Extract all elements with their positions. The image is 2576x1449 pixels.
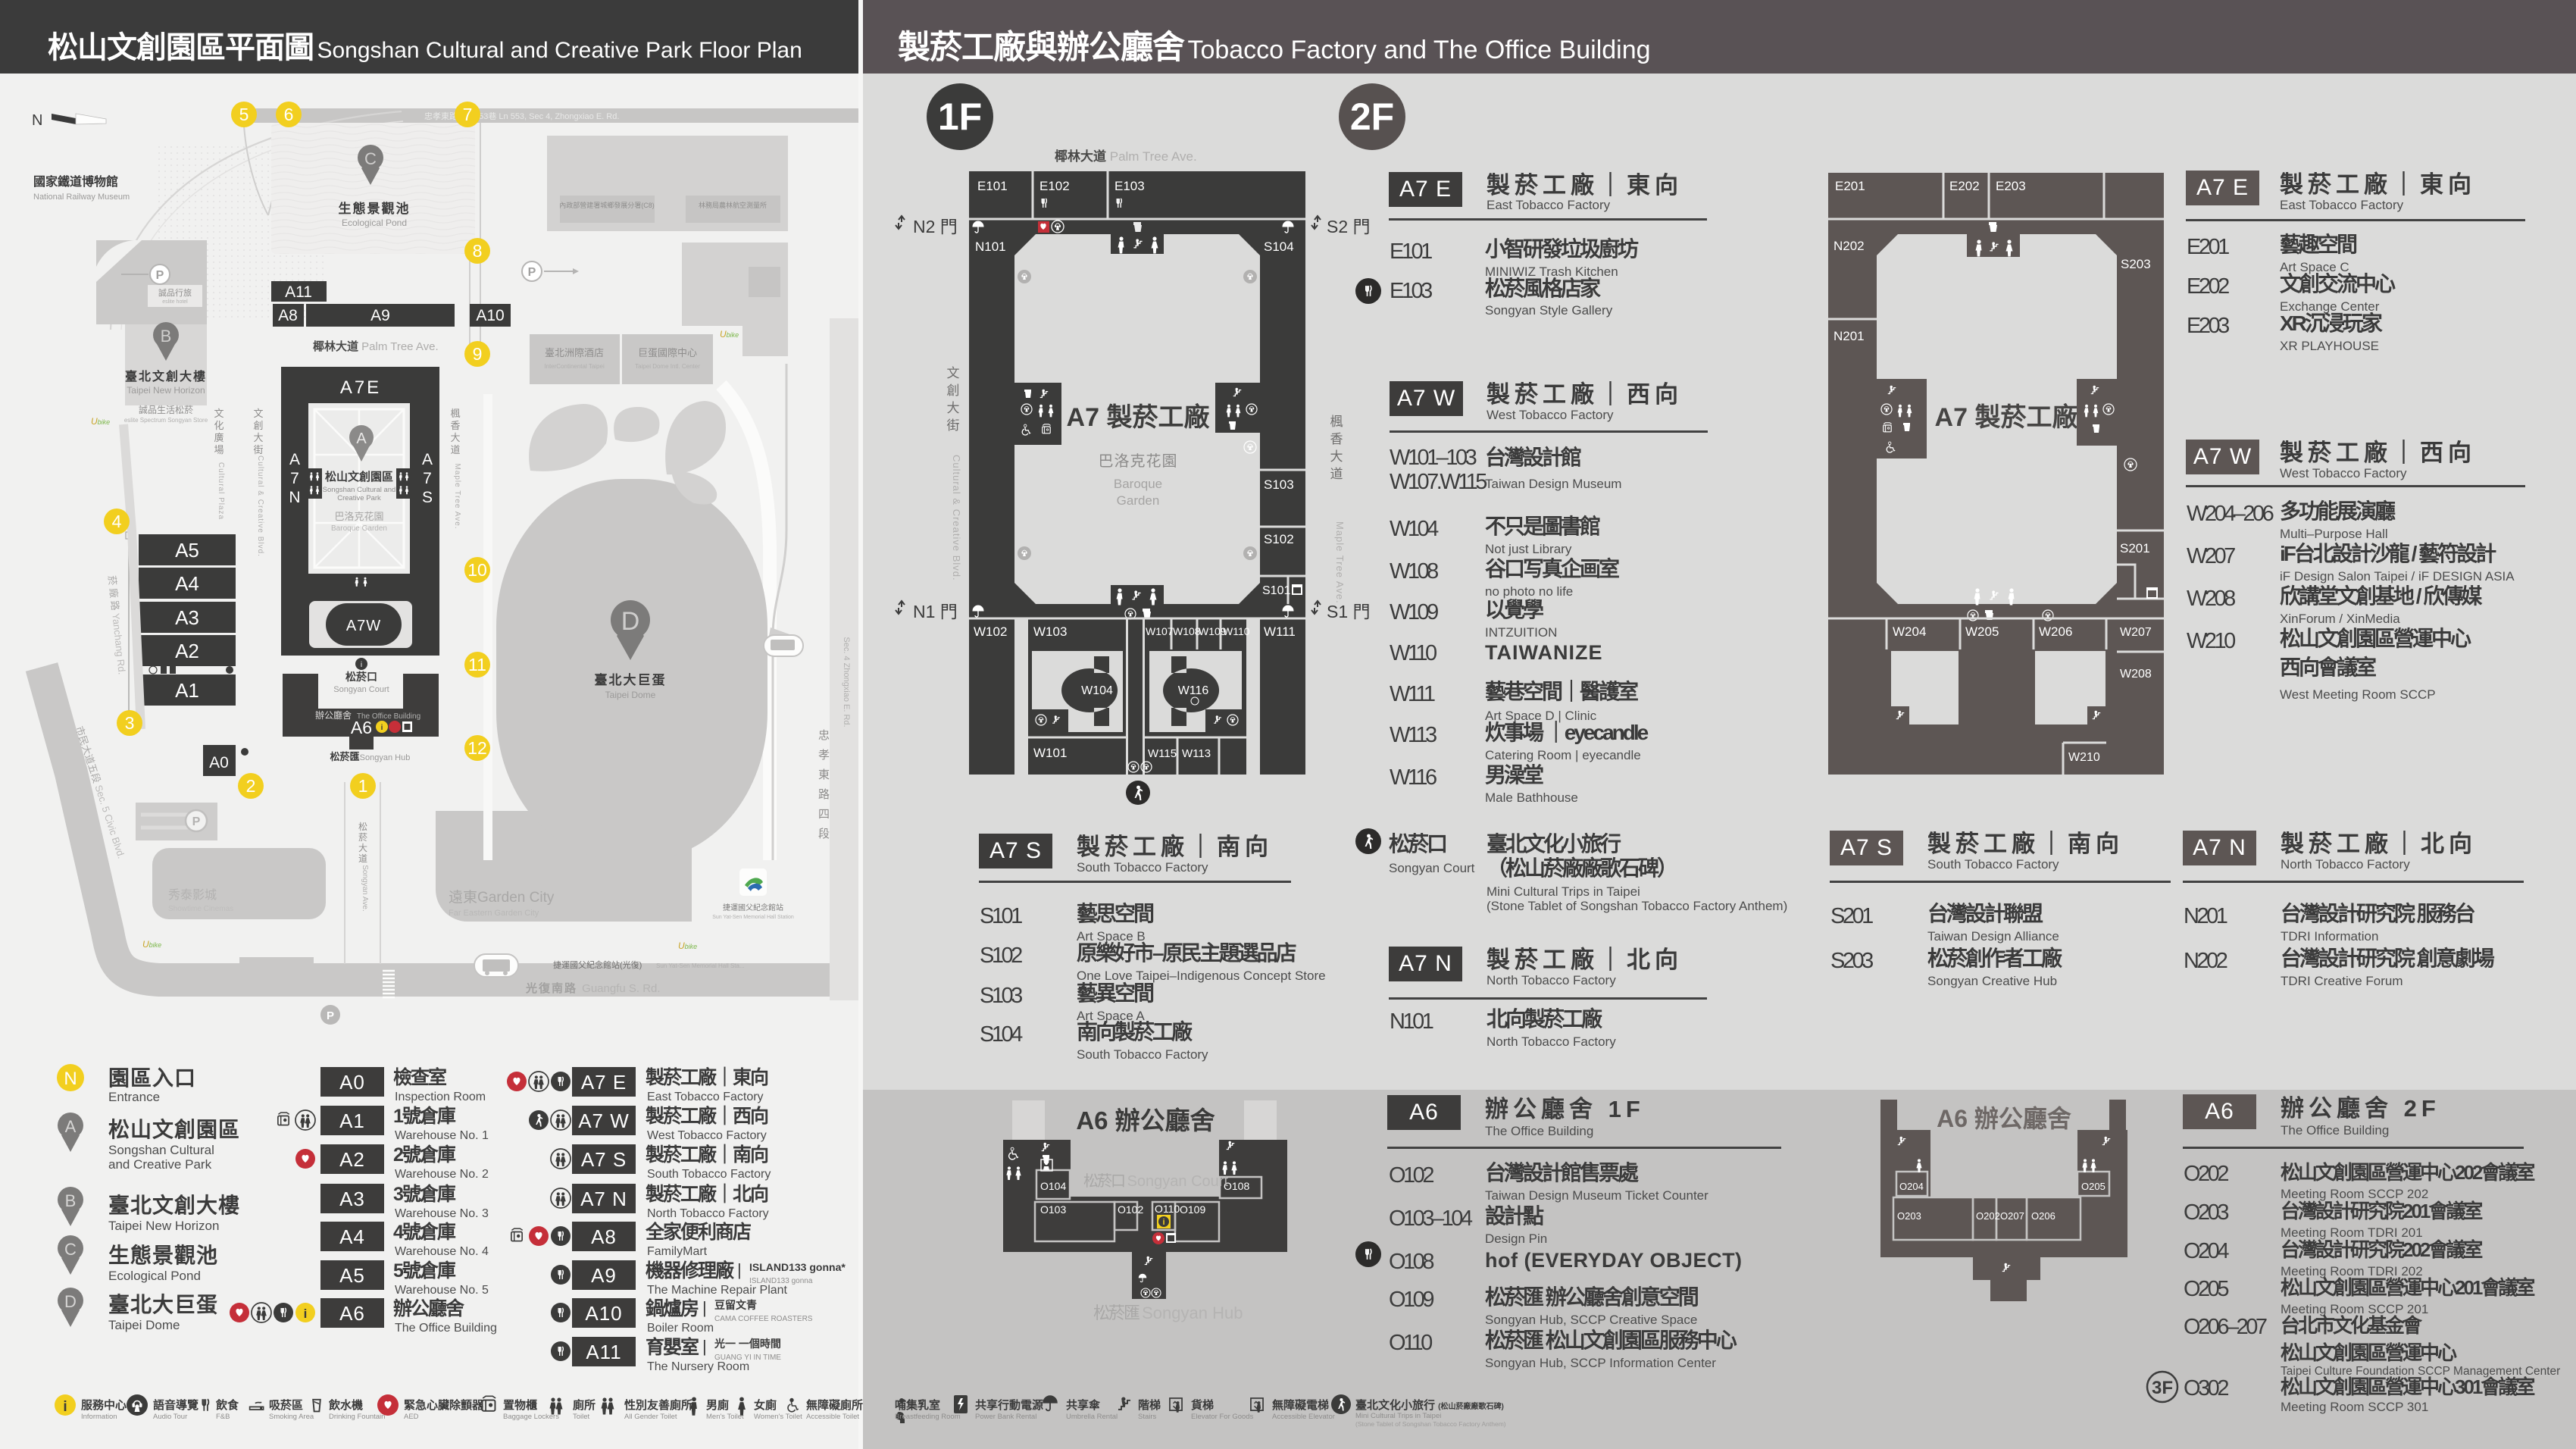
svg-text:S101: S101 [1262, 584, 1290, 597]
svg-text:W107: W107 [1146, 625, 1174, 637]
svg-text:E202: E202 [1949, 179, 1980, 193]
svg-text:10: 10 [467, 560, 487, 580]
svg-text:誠品生活松菸: 誠品生活松菸 [139, 405, 193, 415]
svg-text:鍋爐房: 鍋爐房 [646, 1297, 699, 1319]
svg-text:A3: A3 [339, 1188, 365, 1210]
svg-text:W111: W111 [1264, 624, 1296, 639]
svg-text:8: 8 [473, 241, 483, 261]
svg-text:Songshan Cultural and: Songshan Cultural and [323, 486, 396, 494]
svg-text:忠孝東路四段553巷 Ln 553, Sec 4, Zhon: 忠孝東路四段553巷 Ln 553, Sec 4, Zhongxiao E. R… [424, 111, 619, 121]
svg-text:A5: A5 [175, 539, 199, 562]
svg-text:生態景觀池: 生態景觀池 [108, 1243, 218, 1267]
svg-text:N: N [32, 112, 42, 129]
svg-text:2號倉庫: 2號倉庫 [393, 1144, 456, 1166]
svg-text:|: | [702, 1298, 707, 1317]
svg-text:W113: W113 [1182, 747, 1211, 760]
svg-text:語音導覽: 語音導覽 [153, 1398, 199, 1412]
svg-text:巴洛克花園: 巴洛克花園 [334, 511, 383, 522]
svg-text:全家便利商店: 全家便利商店 [645, 1221, 752, 1243]
svg-text:12: 12 [467, 738, 487, 758]
svg-text:W210: W210 [2068, 751, 2100, 764]
svg-text:S201: S201 [2120, 541, 2150, 556]
svg-text:製菸工廠｜北向: 製菸工廠｜北向 [645, 1183, 768, 1205]
svg-text:椰林大道 Palm Tree Ave.: 椰林大道 Palm Tree Ave. [313, 340, 439, 353]
svg-text:A2: A2 [339, 1148, 365, 1171]
svg-text:5號倉庫: 5號倉庫 [393, 1260, 456, 1282]
svg-text:A6: A6 [351, 718, 372, 737]
svg-text:臺北文創大樓: 臺北文創大樓 [125, 369, 207, 383]
svg-text:A10: A10 [585, 1302, 622, 1325]
svg-text:W104: W104 [1081, 684, 1113, 697]
svg-text:巴洛克花園: 巴洛克花園 [1099, 452, 1178, 470]
svg-text:Accessible Toilet: Accessible Toilet [806, 1413, 859, 1421]
svg-text:eslite Spectrum Songyan Store: eslite Spectrum Songyan Store [124, 417, 208, 424]
svg-text:機器修理廠: 機器修理廠 [646, 1260, 735, 1282]
svg-text:置物櫃: 置物櫃 [503, 1398, 537, 1412]
svg-text:Sun Yat-Sen Memorial Hall Sta.: Sun Yat-Sen Memorial Hall Sta... [656, 962, 745, 969]
svg-text:文化廣場: 文化廣場 [214, 408, 224, 455]
svg-text:Maple Tree Ave.: Maple Tree Ave. [1334, 521, 1346, 604]
svg-text:豆留文青: 豆留文青 [714, 1299, 757, 1311]
svg-text:4: 4 [112, 512, 122, 531]
svg-text:松菸匯 Songyan Hub: 松菸匯 Songyan Hub [1093, 1303, 1243, 1322]
svg-text:E103: E103 [1114, 179, 1145, 193]
svg-text:A7 製菸工廠: A7 製菸工廠 [1067, 402, 1210, 432]
svg-text:A7E: A7E [340, 377, 381, 398]
svg-text:Taipei Dome: Taipei Dome [108, 1318, 180, 1332]
svg-text:P: P [528, 266, 536, 279]
svg-text:無障礙廁所: 無障礙廁所 [806, 1398, 863, 1412]
svg-text:A9: A9 [591, 1264, 617, 1287]
svg-text:W116: W116 [1178, 684, 1209, 697]
svg-text:辦公廳舍: 辦公廳舍 [315, 709, 352, 721]
svg-text:W205: W205 [1965, 624, 1999, 639]
svg-text:W101: W101 [1033, 746, 1067, 760]
svg-text:The Office Building: The Office Building [395, 1322, 497, 1335]
svg-text:O207: O207 [2000, 1210, 2024, 1222]
svg-text:A1: A1 [175, 679, 199, 702]
svg-text:A7 W: A7 W [578, 1109, 630, 1132]
svg-text:A6 辦公廳舍: A6 辦公廳舍 [1076, 1106, 1215, 1134]
svg-text:E203: E203 [1996, 179, 2026, 193]
svg-text:Garden: Garden [1117, 493, 1160, 508]
svg-text:A8: A8 [278, 307, 298, 324]
svg-text:臺北大巨蛋: 臺北大巨蛋 [108, 1293, 218, 1316]
svg-text:Taipei New Horizon: Taipei New Horizon [127, 385, 205, 396]
svg-text:臺北大巨蛋: 臺北大巨蛋 [595, 672, 667, 687]
svg-text:Audio Tour: Audio Tour [153, 1413, 187, 1421]
svg-text:W208: W208 [2120, 668, 2152, 681]
svg-text:製菸工廠｜南向: 製菸工廠｜南向 [645, 1144, 768, 1166]
svg-text:誠品行旅: 誠品行旅 [158, 287, 192, 298]
svg-text:遠東Garden City: 遠東Garden City [449, 889, 555, 906]
svg-text:O110: O110 [1155, 1203, 1180, 1215]
svg-text:O202: O202 [1976, 1210, 2000, 1222]
svg-text:Men's Toilet: Men's Toilet [706, 1413, 744, 1421]
svg-text:飲食: 飲食 [215, 1398, 239, 1412]
svg-text:O102: O102 [1118, 1203, 1143, 1216]
svg-text:FamilyMart: FamilyMart [647, 1245, 708, 1258]
svg-text:楓香大道: 楓香大道 [1330, 415, 1343, 481]
svg-text:Songyan Ave.: Songyan Ave. [361, 865, 369, 912]
svg-text:松菸口 Songyan Court: 松菸口 Songyan Court [1083, 1172, 1228, 1190]
svg-text:Ubike: Ubike [678, 940, 697, 951]
svg-text:W108: W108 [1173, 625, 1201, 637]
svg-text:O104: O104 [1040, 1180, 1066, 1192]
svg-text:Boiler Room: Boiler Room [647, 1322, 714, 1335]
svg-text:Ubike: Ubike [720, 329, 739, 340]
svg-text:Ubike: Ubike [142, 939, 161, 950]
svg-text:E102: E102 [1039, 179, 1070, 193]
svg-text:內政部營建署城鄉發展分署(C8): 內政部營建署城鄉發展分署(C8) [559, 201, 655, 209]
svg-text:D: D [621, 607, 640, 636]
svg-text:捷運國父紀念館站(光復): 捷運國父紀念館站(光復) [553, 959, 642, 970]
svg-text:South Tobacco Factory: South Tobacco Factory [647, 1168, 771, 1181]
svg-text:3F: 3F [2152, 1378, 2173, 1398]
svg-text:P: P [327, 1009, 334, 1022]
svg-text:Cultural & Creative Blvd.: Cultural & Creative Blvd. [256, 455, 264, 557]
svg-text:A0: A0 [209, 754, 229, 771]
svg-text:3號倉庫: 3號倉庫 [393, 1183, 456, 1205]
svg-text:廁所: 廁所 [573, 1398, 596, 1412]
svg-text:巨蛋國際中心: 巨蛋國際中心 [638, 347, 697, 358]
svg-text:AED: AED [404, 1413, 419, 1421]
svg-text:A7S: A7S [422, 451, 433, 506]
svg-text:Taipei Dome Intl. Center: Taipei Dome Intl. Center [635, 363, 700, 370]
svg-text:Songyan Court: Songyan Court [333, 685, 389, 694]
svg-text:A: A [65, 1117, 77, 1136]
svg-text:7: 7 [463, 105, 473, 124]
svg-text:光一 一個時間: 光一 一個時間 [714, 1338, 781, 1350]
svg-text:O206: O206 [2031, 1210, 2055, 1222]
svg-text:Baroque: Baroque [1114, 477, 1162, 491]
svg-text:女廁: 女廁 [754, 1398, 777, 1412]
svg-text:臺北文創大樓: 臺北文創大樓 [108, 1193, 240, 1217]
svg-text:9: 9 [473, 344, 483, 364]
svg-text:A7N: A7N [289, 451, 300, 506]
svg-text:i: i [361, 661, 362, 669]
svg-text:Taipei Dome: Taipei Dome [605, 690, 656, 700]
svg-text:C: C [364, 149, 377, 168]
svg-text:West Tobacco Factory: West Tobacco Factory [647, 1129, 767, 1142]
svg-text:i: i [1162, 1218, 1165, 1227]
svg-text:|: | [702, 1337, 707, 1356]
svg-text:National Railway Museum: National Railway Museum [33, 192, 130, 202]
svg-text:Maple Tree Ave.: Maple Tree Ave. [453, 463, 461, 529]
svg-text:Baggage Lockers: Baggage Lockers [503, 1413, 559, 1421]
svg-text:i: i [304, 1307, 308, 1321]
svg-text:S103: S103 [1264, 477, 1294, 492]
svg-text:Far Eastern Garden City: Far Eastern Garden City [449, 909, 539, 918]
svg-text:A7 N: A7 N [580, 1188, 627, 1210]
svg-text:InterContinental Taipei: InterContinental Taipei [544, 363, 605, 370]
svg-text:D: D [64, 1292, 77, 1311]
svg-text:園區入口: 園區入口 [108, 1066, 196, 1090]
svg-text:Warehouse No. 1: Warehouse No. 1 [395, 1129, 489, 1142]
svg-text:W115: W115 [1148, 747, 1177, 760]
svg-text:Warehouse No. 2: Warehouse No. 2 [395, 1168, 489, 1181]
svg-text:|: | [737, 1260, 742, 1279]
svg-text:Information: Information [81, 1413, 117, 1421]
svg-text:ISLAND133 gonna*: ISLAND133 gonna* [749, 1261, 846, 1273]
svg-text:A5: A5 [339, 1264, 365, 1287]
svg-text:1F: 1F [938, 95, 982, 138]
svg-text:O109: O109 [1180, 1203, 1205, 1216]
svg-text:A7 E: A7 E [581, 1071, 627, 1094]
svg-text:Sec. 4 Zhongxiao E. Rd.: Sec. 4 Zhongxiao E. Rd. [842, 637, 851, 727]
svg-text:製菸工廠｜東向: 製菸工廠｜東向 [645, 1066, 768, 1088]
svg-text:A7W: A7W [346, 618, 381, 634]
svg-text:N101: N101 [975, 239, 1006, 254]
svg-text:松菸匯: 松菸匯 [330, 751, 359, 762]
svg-text:Ubike: Ubike [91, 416, 110, 427]
svg-text:吸菸區: 吸菸區 [269, 1398, 303, 1412]
svg-text:Entrance: Entrance [108, 1090, 160, 1104]
svg-text:松山文創園區: 松山文創園區 [108, 1117, 240, 1141]
svg-text:O204: O204 [1899, 1181, 1924, 1192]
svg-text:性別友善廁所: 性別友善廁所 [624, 1398, 692, 1412]
svg-text:Taipei New Horizon: Taipei New Horizon [108, 1219, 219, 1233]
svg-text:A9: A9 [370, 307, 390, 324]
svg-text:A11: A11 [285, 283, 312, 301]
svg-text:Women's Toilet: Women's Toilet [754, 1413, 802, 1421]
svg-text:A3: A3 [175, 606, 199, 629]
svg-text:緊急心臟除顫器: 緊急心臟除顫器 [404, 1398, 484, 1412]
svg-text:飲水機: 飲水機 [328, 1398, 363, 1412]
svg-text:服務中心: 服務中心 [81, 1398, 127, 1412]
svg-text:男廁: 男廁 [706, 1398, 729, 1412]
svg-text:A4: A4 [339, 1225, 365, 1248]
svg-text:文創大街: 文創大街 [253, 408, 263, 455]
svg-text:文創大街: 文創大街 [947, 366, 960, 433]
svg-text:Warehouse No. 5: Warehouse No. 5 [395, 1284, 489, 1297]
svg-text:A4: A4 [175, 572, 199, 595]
svg-text:5: 5 [239, 105, 249, 124]
svg-text:Toilet: Toilet [573, 1413, 590, 1421]
svg-text:臺北洲際酒店: 臺北洲際酒店 [545, 347, 604, 358]
svg-text:S102: S102 [1264, 532, 1294, 546]
svg-text:秀泰影城: 秀泰影城 [168, 888, 217, 902]
svg-text:A11: A11 [586, 1341, 621, 1363]
svg-text:Warehouse No. 4: Warehouse No. 4 [395, 1245, 489, 1258]
svg-text:A1: A1 [339, 1109, 365, 1132]
svg-text:生態景觀池: 生態景觀池 [339, 201, 411, 216]
svg-text:Songyan Hub: Songyan Hub [360, 753, 411, 762]
svg-text:製菸工廠｜西向: 製菸工廠｜西向 [645, 1105, 768, 1127]
svg-text:松菸大道: 松菸大道 [358, 822, 367, 864]
svg-text:F&B: F&B [216, 1413, 230, 1421]
svg-text:Cultural Plaza: Cultural Plaza [217, 462, 225, 520]
svg-text:Cultural & Creative Blvd.: Cultural & Creative Blvd. [951, 455, 962, 581]
svg-text:松菸口: 松菸口 [345, 671, 377, 683]
svg-text:eslite hotel: eslite hotel [162, 299, 188, 305]
svg-text:P: P [192, 815, 201, 828]
svg-text:S104: S104 [1264, 239, 1294, 254]
svg-text:4號倉庫: 4號倉庫 [393, 1221, 456, 1243]
svg-text:1: 1 [358, 776, 368, 796]
svg-text:6: 6 [284, 105, 294, 124]
svg-text:East Tobacco Factory: East Tobacco Factory [647, 1091, 764, 1103]
svg-text:Warehouse No. 3: Warehouse No. 3 [395, 1207, 489, 1220]
svg-text:N201: N201 [1834, 329, 1865, 343]
svg-text:Songshan Cultural: Songshan Cultural [108, 1143, 214, 1157]
svg-text:O205: O205 [2081, 1181, 2106, 1192]
svg-text:2: 2 [246, 776, 256, 796]
svg-text:W207: W207 [2120, 626, 2152, 639]
svg-text:S203: S203 [2121, 257, 2151, 271]
svg-text:A0: A0 [339, 1071, 365, 1094]
svg-text:檢查室: 檢查室 [393, 1066, 447, 1088]
svg-text:A6 辦公廳舍: A6 辦公廳舍 [1937, 1105, 2071, 1132]
svg-text:N2 門: N2 門 [913, 217, 958, 236]
svg-text:松山文創園區: 松山文創園區 [325, 470, 393, 484]
svg-text:O203: O203 [1897, 1210, 1921, 1222]
svg-text:All Gender Toilet: All Gender Toilet [624, 1413, 677, 1421]
svg-text:A7 製菸工廠: A7 製菸工廠 [1935, 402, 2078, 432]
svg-text:11: 11 [468, 655, 486, 674]
svg-text:捷運國父紀念館站: 捷運國父紀念館站 [723, 903, 783, 912]
svg-text:W206: W206 [2039, 624, 2072, 639]
svg-text:Drinking Fountain: Drinking Fountain [329, 1413, 385, 1421]
svg-text:Ecological Pond: Ecological Pond [108, 1269, 201, 1283]
svg-text:Inspection Room: Inspection Room [395, 1091, 486, 1103]
svg-text:W204: W204 [1893, 624, 1926, 639]
svg-text:North Tobacco Factory: North Tobacco Factory [647, 1207, 769, 1220]
svg-text:A8: A8 [591, 1225, 617, 1248]
svg-text:楓香大道: 楓香大道 [450, 408, 460, 455]
svg-text:N: N [64, 1069, 77, 1089]
svg-text:N202: N202 [1834, 239, 1865, 253]
svg-text:A: A [356, 430, 367, 447]
svg-text:Sun Yat-Sen Memorial Hall Stat: Sun Yat-Sen Memorial Hall Station [712, 915, 794, 920]
svg-text:The Machine Repair Plant: The Machine Repair Plant [647, 1284, 788, 1297]
svg-text:i: i [381, 724, 383, 732]
svg-text:C: C [64, 1240, 77, 1259]
svg-text:E201: E201 [1835, 179, 1865, 193]
svg-text:A7 S: A7 S [581, 1148, 627, 1171]
svg-text:A2: A2 [175, 640, 199, 662]
svg-text:A10: A10 [476, 307, 504, 324]
svg-text:and Creative Park: and Creative Park [108, 1157, 212, 1172]
svg-text:林務局農林航空測量所: 林務局農林航空測量所 [699, 201, 767, 209]
svg-text:B: B [161, 327, 172, 346]
svg-text:P: P [156, 269, 164, 282]
svg-text:W110: W110 [1223, 625, 1250, 637]
svg-text:E101: E101 [977, 179, 1008, 193]
svg-text:2F: 2F [1350, 95, 1394, 138]
svg-text:N1 門: N1 門 [913, 602, 958, 621]
svg-text:Creative Park: Creative Park [337, 494, 381, 502]
svg-text:i: i [63, 1399, 67, 1415]
svg-text:Ecological Pond: Ecological Pond [342, 218, 407, 228]
svg-text:Showtime Cinemas: Showtime Cinemas [168, 905, 233, 913]
svg-text:椰林大道 Palm Tree Ave.: 椰林大道 Palm Tree Ave. [1055, 149, 1197, 164]
svg-text:國家鐵道博物館: 國家鐵道博物館 [33, 174, 118, 189]
svg-text:3: 3 [125, 713, 135, 733]
svg-text:W102: W102 [974, 624, 1007, 639]
svg-text:Baroque Garden: Baroque Garden [331, 524, 387, 533]
svg-text:Smoking Area: Smoking Area [269, 1413, 314, 1421]
svg-text:CAMA COFFEE ROASTERS: CAMA COFFEE ROASTERS [714, 1315, 813, 1323]
svg-text:辦公廳舍: 辦公廳舍 [393, 1297, 464, 1319]
svg-text:1號倉庫: 1號倉庫 [393, 1105, 456, 1127]
svg-text:育嬰室: 育嬰室 [646, 1336, 699, 1358]
svg-text:A6: A6 [339, 1302, 365, 1325]
svg-text:W103: W103 [1033, 624, 1067, 639]
svg-text:B: B [65, 1191, 77, 1210]
svg-text:O103: O103 [1040, 1203, 1066, 1216]
svg-text:The Nursery Room: The Nursery Room [647, 1360, 749, 1373]
svg-text:光復南路 Guangfu S. Rd.: 光復南路 Guangfu S. Rd. [525, 981, 661, 995]
